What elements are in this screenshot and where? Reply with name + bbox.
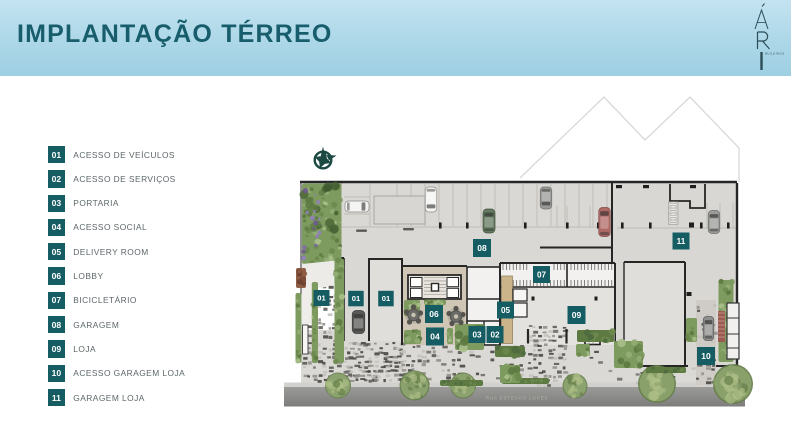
svg-text:04: 04	[430, 332, 440, 342]
svg-text:01: 01	[352, 294, 361, 303]
svg-text:06: 06	[429, 309, 439, 319]
svg-text:01: 01	[382, 294, 391, 303]
svg-text:03: 03	[472, 331, 482, 340]
svg-text:08: 08	[477, 243, 487, 253]
svg-text:01: 01	[317, 294, 326, 303]
svg-text:02: 02	[490, 331, 500, 340]
svg-text:09: 09	[572, 310, 582, 320]
svg-text:RUA ESTEVÃO LOPES: RUA ESTEVÃO LOPES	[486, 395, 549, 401]
svg-text:07: 07	[537, 271, 547, 280]
svg-text:10: 10	[701, 351, 711, 361]
svg-text:05: 05	[501, 306, 511, 315]
svg-text:11: 11	[677, 237, 686, 246]
